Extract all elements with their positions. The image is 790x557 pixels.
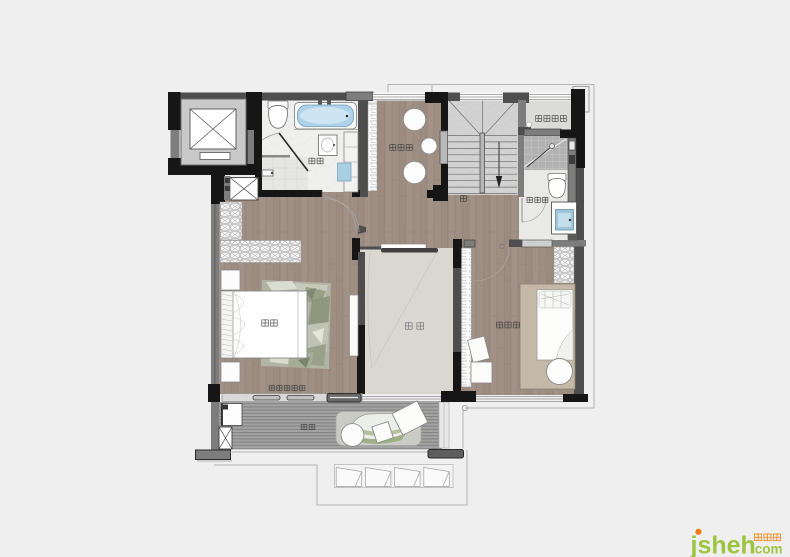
svg-text:.com: .com (751, 542, 783, 557)
svg-text:jsheh: jsheh (690, 532, 756, 557)
